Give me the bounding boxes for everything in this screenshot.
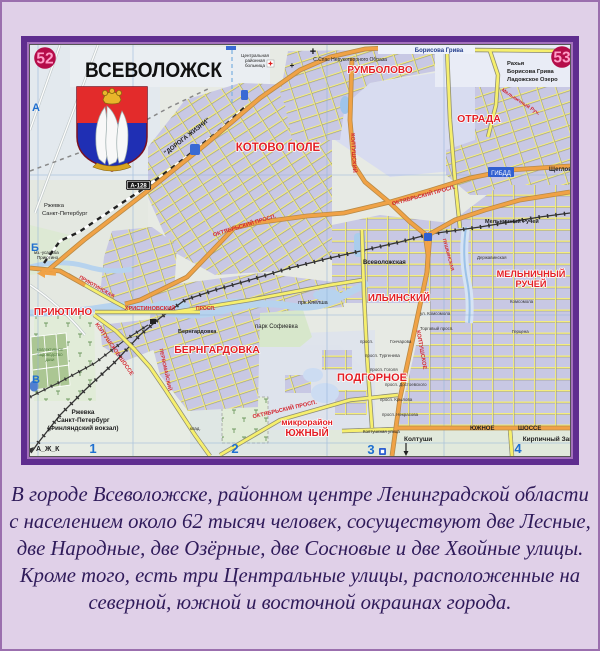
svg-text:Ладожское Озеро: Ладожское Озеро — [507, 77, 558, 83]
svg-text:просп. Достоевского: просп. Достоевского — [385, 382, 427, 387]
svg-text:1: 1 — [89, 441, 96, 456]
svg-text:КОТОВО ПОЛЕ: КОТОВО ПОЛЕ — [236, 142, 321, 154]
svg-text:парк Софиевка: парк Софиевка — [255, 324, 298, 330]
svg-text:53: 53 — [553, 50, 570, 67]
svg-text:Гончарова: Гончарова — [390, 339, 412, 344]
svg-text:Борисова Грива: Борисова Грива — [415, 48, 464, 54]
svg-text:А_Ж_К: А_Ж_К — [36, 446, 60, 453]
svg-text:Санкт-Петербург: Санкт-Петербург — [56, 416, 109, 424]
svg-text:А: А — [32, 102, 40, 114]
svg-text:Приютино: Приютино — [37, 255, 59, 260]
svg-text:Ржевка: Ржевка — [72, 409, 95, 416]
svg-text:РУМБОЛОВО: РУМБОЛОВО — [347, 65, 413, 76]
svg-text:МЕЛЬНИЧНЫЙ: МЕЛЬНИЧНЫЙ — [497, 268, 566, 279]
svg-text:микрорайон: микрорайон — [281, 417, 333, 427]
svg-text:ул. Комсомола: ул. Комсомола — [420, 311, 451, 316]
svg-text:ДАЧИ: ДАЧИ — [46, 358, 55, 362]
svg-text:ВСЕВОЛОЖСК: ВСЕВОЛОЖСК — [85, 58, 223, 82]
svg-text:Щеглово: Щеглово — [549, 167, 570, 173]
svg-text:просп. Некрасова: просп. Некрасова — [382, 412, 419, 417]
svg-text:Рахья: Рахья — [507, 61, 524, 67]
svg-text:(Финляндский вокзал): (Финляндский вокзал) — [47, 424, 118, 432]
svg-text:просп.: просп. — [360, 339, 373, 344]
svg-text:ХРИСТИНОВСКИЙ: ХРИСТИНОВСКИЙ — [125, 304, 176, 312]
svg-text:4: 4 — [514, 441, 522, 456]
svg-text:Торговый просп.: Торговый просп. — [420, 326, 453, 331]
svg-text:ШОССЕ: ШОССЕ — [518, 426, 541, 432]
svg-text:КОЛЛЕКТИВНОЕ: КОЛЛЕКТИВНОЕ — [37, 348, 64, 352]
svg-text:БЕРНГАРДОВКА: БЕРНГАРДОВКА — [174, 344, 260, 356]
svg-text:просп. Гоголя: просп. Гоголя — [370, 367, 398, 372]
svg-text:клад.: клад. — [190, 426, 201, 431]
svg-text:просп. Тургенева: просп. Тургенева — [365, 353, 400, 358]
svg-text:3: 3 — [367, 442, 374, 456]
svg-text:прк Кяелша: прк Кяелша — [298, 300, 329, 306]
svg-text:+: + — [290, 61, 295, 70]
svg-text:52: 52 — [36, 51, 53, 68]
svg-text:САДОВОДСТВО: САДОВОДСТВО — [37, 353, 63, 357]
svg-text:ПРИЮТИНО: ПРИЮТИНО — [34, 307, 93, 318]
svg-text:Герцена: Герцена — [512, 329, 529, 334]
svg-text:ОТРАДА: ОТРАДА — [457, 113, 501, 125]
svg-text:С.Спас Нерукотворного Образа: С.Спас Нерукотворного Образа — [313, 57, 387, 63]
svg-text:ЮЖНОЕ: ЮЖНОЕ — [470, 426, 494, 432]
svg-text:Комсомола: Комсомола — [510, 299, 534, 304]
svg-text:Мельничный Ручей: Мельничный Ручей — [485, 218, 539, 225]
svg-text:+: + — [310, 46, 316, 58]
svg-text:А-128: А-128 — [130, 184, 147, 190]
svg-text:ПРОСП.: ПРОСП. — [196, 306, 216, 312]
svg-text:Колтуши: Колтуши — [404, 436, 432, 443]
svg-text:ИЛЬИНСКИЙ: ИЛЬИНСКИЙ — [368, 292, 430, 304]
svg-text:Державинская: Державинская — [477, 255, 507, 260]
svg-text:Всеволожская: Всеволожская — [363, 260, 406, 266]
svg-text:В: В — [32, 374, 40, 386]
svg-text:РУЧЕЙ: РУЧЕЙ — [516, 278, 547, 289]
svg-text:Борисова Грива: Борисова Грива — [507, 69, 555, 75]
svg-text:Ржевка: Ржевка — [44, 203, 65, 209]
svg-text:ЮЖНЫЙ: ЮЖНЫЙ — [285, 426, 328, 439]
svg-text:больница: больница — [245, 63, 266, 68]
svg-text:Колтушская улица: Колтушская улица — [363, 429, 400, 434]
svg-text:Б: Б — [31, 242, 39, 254]
svg-text:Санкт-Петербург: Санкт-Петербург — [42, 211, 87, 217]
svg-text:просп. Крылова: просп. Крылова — [380, 397, 413, 402]
svg-text:ГИБДД: ГИБДД — [491, 171, 511, 177]
svg-text:Кирпичный Зав: Кирпичный Зав — [523, 435, 570, 443]
svg-text:2: 2 — [231, 441, 238, 456]
svg-text:Бернгардовка: Бернгардовка — [178, 329, 217, 335]
